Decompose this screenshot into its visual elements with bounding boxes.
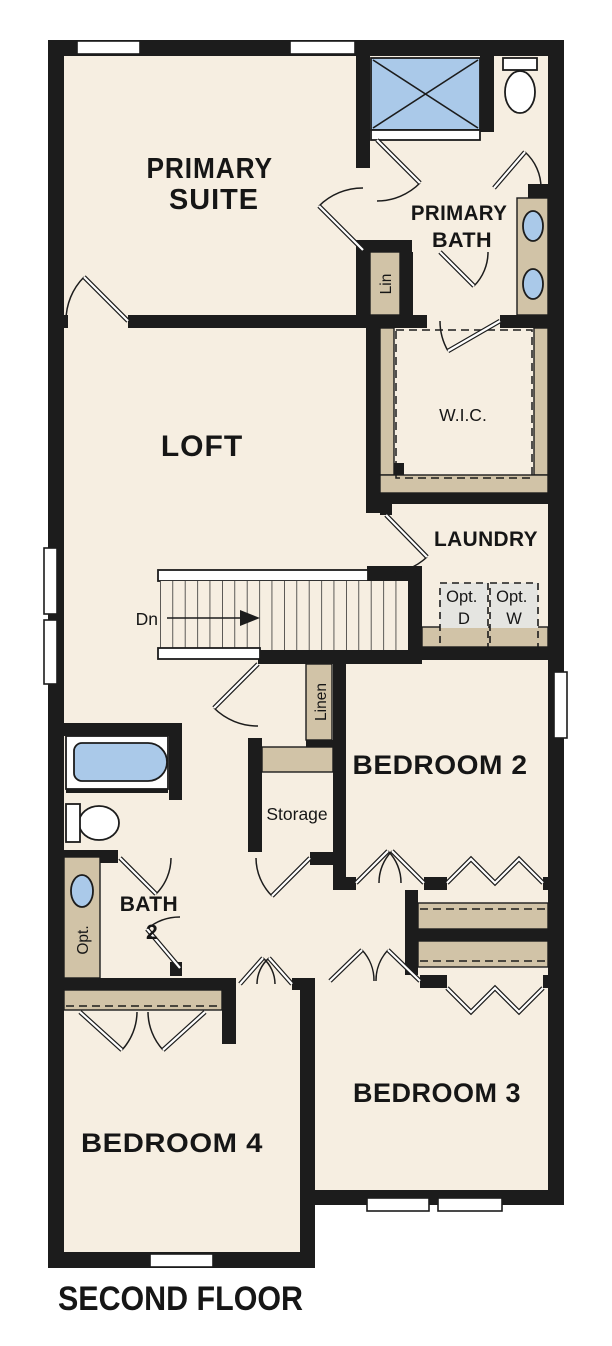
shower (371, 58, 480, 140)
primary-toilet (503, 58, 537, 113)
bath2-toilet (66, 804, 119, 842)
window-bedroom4 (150, 1254, 213, 1267)
window-bedroom2 (554, 672, 567, 738)
bath2-sink (71, 875, 93, 907)
plan-title: SECOND FLOOR (58, 1280, 303, 1318)
floorplan-second-floor: PRIMARY SUITE LOFT PRIMARY BATH W.I.C. L… (0, 0, 612, 1346)
floorplan-canvas: PRIMARY SUITE LOFT PRIMARY BATH W.I.C. L… (0, 0, 612, 1346)
stairs-dn-label: Dn (136, 609, 158, 629)
window-primary-suite-2 (290, 41, 355, 54)
window-loft-2 (44, 620, 57, 684)
bedroom4-closet-shelf (64, 990, 222, 1010)
vanity-sink-2 (523, 269, 543, 299)
room-label-storage: Storage (266, 804, 327, 824)
room-label-loft: LOFT (161, 430, 243, 463)
bathtub (66, 736, 168, 789)
room-label-lin: Lin (378, 274, 395, 295)
bedroom3-closet-shelf (418, 941, 548, 967)
room-label-bedroom2: BEDROOM 2 (353, 750, 528, 780)
opt-sink-label: Opt. (75, 925, 92, 954)
window-bedroom3-1 (367, 1198, 429, 1211)
window-primary-suite-1 (77, 41, 140, 54)
primary-vanity (517, 198, 548, 315)
room-label-wic: W.I.C. (439, 405, 487, 425)
room-label-linen: Linen (313, 683, 330, 721)
bedroom2-closet-shelf (418, 903, 548, 929)
vanity-sink-1 (523, 211, 543, 241)
room-label-laundry: LAUNDRY (434, 528, 538, 551)
window-loft-1 (44, 548, 57, 614)
window-bedroom3-2 (438, 1198, 502, 1211)
storage-shelf (262, 747, 333, 772)
laundry-counter (422, 627, 548, 647)
bath2-vanity (64, 857, 100, 978)
stairs (158, 570, 408, 659)
room-label-bedroom4: BEDROOM 4 (81, 1128, 263, 1158)
room-label-bedroom3: BEDROOM 3 (353, 1078, 521, 1108)
